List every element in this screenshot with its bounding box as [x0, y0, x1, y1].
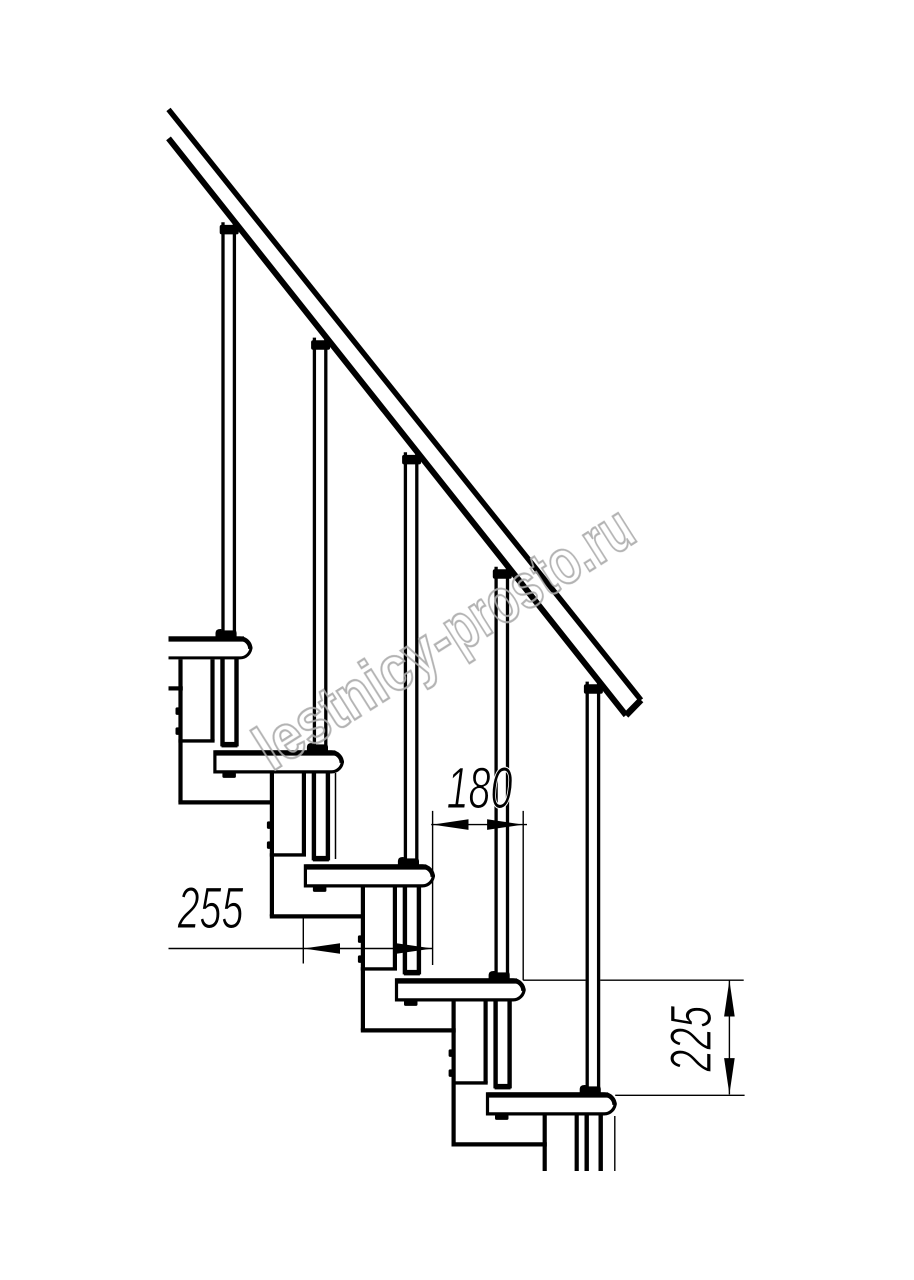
- svg-text:180: 180: [447, 755, 513, 820]
- svg-text:225: 225: [658, 1005, 723, 1072]
- svg-text:255: 255: [177, 875, 244, 940]
